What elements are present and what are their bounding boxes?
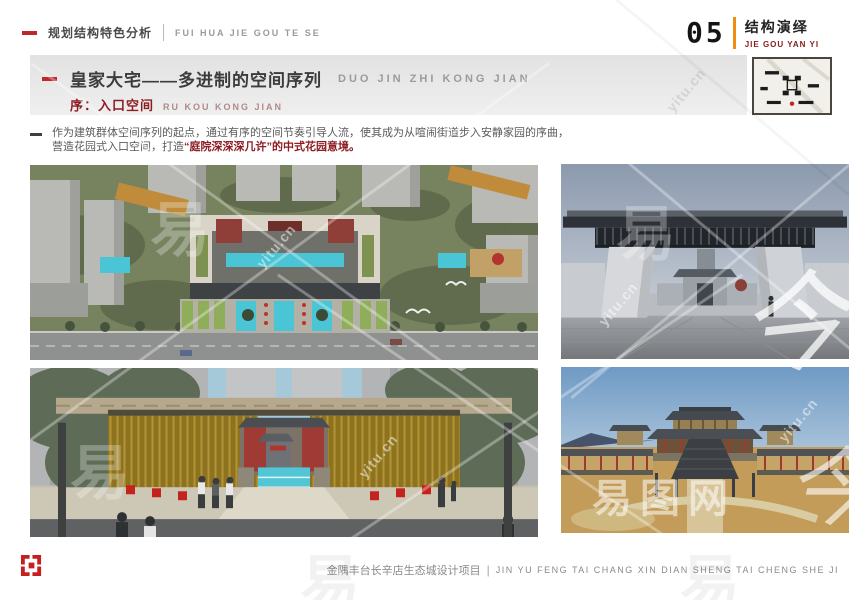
seal-logo-drawing xyxy=(20,552,43,579)
site-plan-drawing xyxy=(754,59,830,113)
chapter-number: 05 xyxy=(686,16,726,49)
palace-photo-drawing xyxy=(561,367,849,533)
intro-paragraph-text: 作为建筑群体空间序列的起点，通过有序的空间节奏引导人流，使其成为从喧闹街道步入安… xyxy=(52,126,710,154)
subtitle-text: 入口空间 xyxy=(98,95,154,114)
header-right: 05 结构演绎 JIE GOU YAN YI xyxy=(686,16,819,49)
footer-project-line: 金隅丰台长辛店生态城设计项目 | JIN YU FENG TAI CHANG X… xyxy=(327,562,839,578)
section-title: 规划结构特色分析 xyxy=(48,24,152,41)
footer-divider: | xyxy=(487,563,490,577)
project-name: 金隅丰台长辛店生态城设计项目 xyxy=(327,562,481,578)
aerial-render-drawing xyxy=(30,165,538,360)
header-left: 规划结构特色分析 FUI HUA JIE GOU TE SE xyxy=(22,24,321,41)
entrance-render-drawing xyxy=(30,368,538,537)
paragraph-highlight: “庭院深深深几许”的中式花园意境。 xyxy=(184,141,360,153)
site-plan-thumbnail xyxy=(752,57,832,115)
palace-photo-image xyxy=(561,367,849,533)
subtitle-separator: ： xyxy=(84,95,98,114)
red-dash-icon xyxy=(22,31,37,35)
title-band: 皇家大宅——多进制的空间序列 DUO JIN ZHI KONG JIAN 序 ：… xyxy=(30,55,747,115)
subtitle-row: 序 ： 入口空间 RU KOU KONG JIAN xyxy=(70,95,283,114)
paragraph-line2: 营造花园式入口空间，打造 xyxy=(52,141,184,153)
project-name-pinyin: JIN YU FENG TAI CHANG XIN DIAN SHENG TAI… xyxy=(496,565,839,575)
chapter-title-pinyin: JIE GOU YAN YI xyxy=(745,40,819,49)
section-title-pinyin: FUI HUA JIE GOU TE SE xyxy=(175,28,321,38)
company-seal-logo xyxy=(20,552,43,579)
red-dash-icon xyxy=(42,77,57,81)
subtitle-pinyin: RU KOU KONG JIAN xyxy=(163,102,283,112)
modern-gate-photo-image xyxy=(561,164,849,359)
presentation-slide: 规划结构特色分析 FUI HUA JIE GOU TE SE 05 结构演绎 J… xyxy=(0,0,849,600)
intro-paragraph: 作为建筑群体空间序列的起点，通过有序的空间节奏引导人流，使其成为从喧闹街道步入安… xyxy=(30,126,710,154)
chapter-title: 结构演绎 xyxy=(745,17,819,37)
modern-gate-drawing xyxy=(561,164,849,359)
aerial-courtyard-render-image xyxy=(30,165,538,360)
page-title-pinyin: DUO JIN ZHI KONG JIAN xyxy=(338,73,531,85)
paragraph-line1: 作为建筑群体空间序列的起点，通过有序的空间节奏引导人流，使其成为从喧闹街道步入安… xyxy=(52,127,569,139)
page-title: 皇家大宅——多进制的空间序列 xyxy=(70,66,322,91)
entrance-render-image xyxy=(30,368,538,537)
dark-dash-icon xyxy=(30,133,42,136)
vertical-divider xyxy=(163,24,164,41)
title-row: 皇家大宅——多进制的空间序列 DUO JIN ZHI KONG JIAN xyxy=(42,66,531,91)
subtitle-label: 序 xyxy=(70,95,84,114)
chapter-title-block: 结构演绎 JIE GOU YAN YI xyxy=(745,17,819,49)
orange-divider xyxy=(733,17,736,49)
